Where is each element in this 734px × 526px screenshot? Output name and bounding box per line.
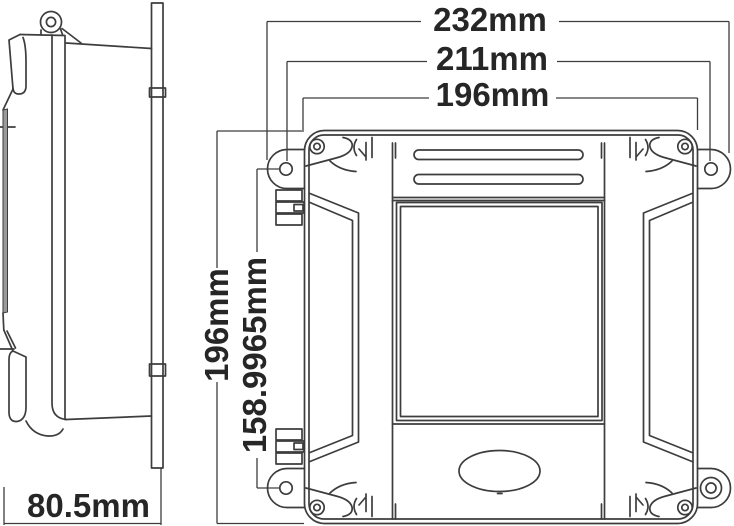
back-plate	[152, 3, 164, 468]
body-outline-outer	[305, 131, 698, 524]
dim-hole-spacing-width-label: 211mm	[427, 42, 557, 76]
dim-depth-label: 80.5mm	[25, 489, 152, 523]
mounting-ear-top-right	[698, 150, 731, 189]
side-body	[20, 35, 152, 420]
dimension-drawing: 232mm 211mm 196mm 196mm 158.9965mm 80.5m…	[0, 0, 734, 526]
logo-oval	[459, 451, 540, 494]
body-outline-inner	[309, 135, 693, 519]
dim-hole-spacing-height-label: 158.9965mm	[238, 250, 272, 460]
front-view-drawing	[268, 131, 731, 524]
mounting-ear-bottom-right	[698, 469, 731, 508]
terminal-block-upper	[276, 190, 304, 225]
side-view-drawing	[0, 3, 166, 468]
side-front-door	[0, 35, 63, 437]
dim-overall-width-label: 232mm	[421, 3, 559, 37]
door-latch-foot	[9, 351, 26, 422]
dim-body-width-label: 196mm	[429, 78, 556, 112]
corner-screw-detail	[306, 138, 372, 172]
side-wing-left	[310, 194, 359, 462]
side-wing-right	[644, 194, 693, 462]
dim-body-height-label: 196mm	[200, 260, 234, 390]
door-edge-shaded	[3, 109, 8, 313]
center-panel	[393, 143, 605, 519]
dimension-lines	[4, 22, 729, 526]
vent-slots	[414, 150, 583, 184]
side-mounting-ear	[41, 12, 82, 44]
drawing-canvas	[0, 0, 734, 526]
display-window	[397, 203, 603, 421]
